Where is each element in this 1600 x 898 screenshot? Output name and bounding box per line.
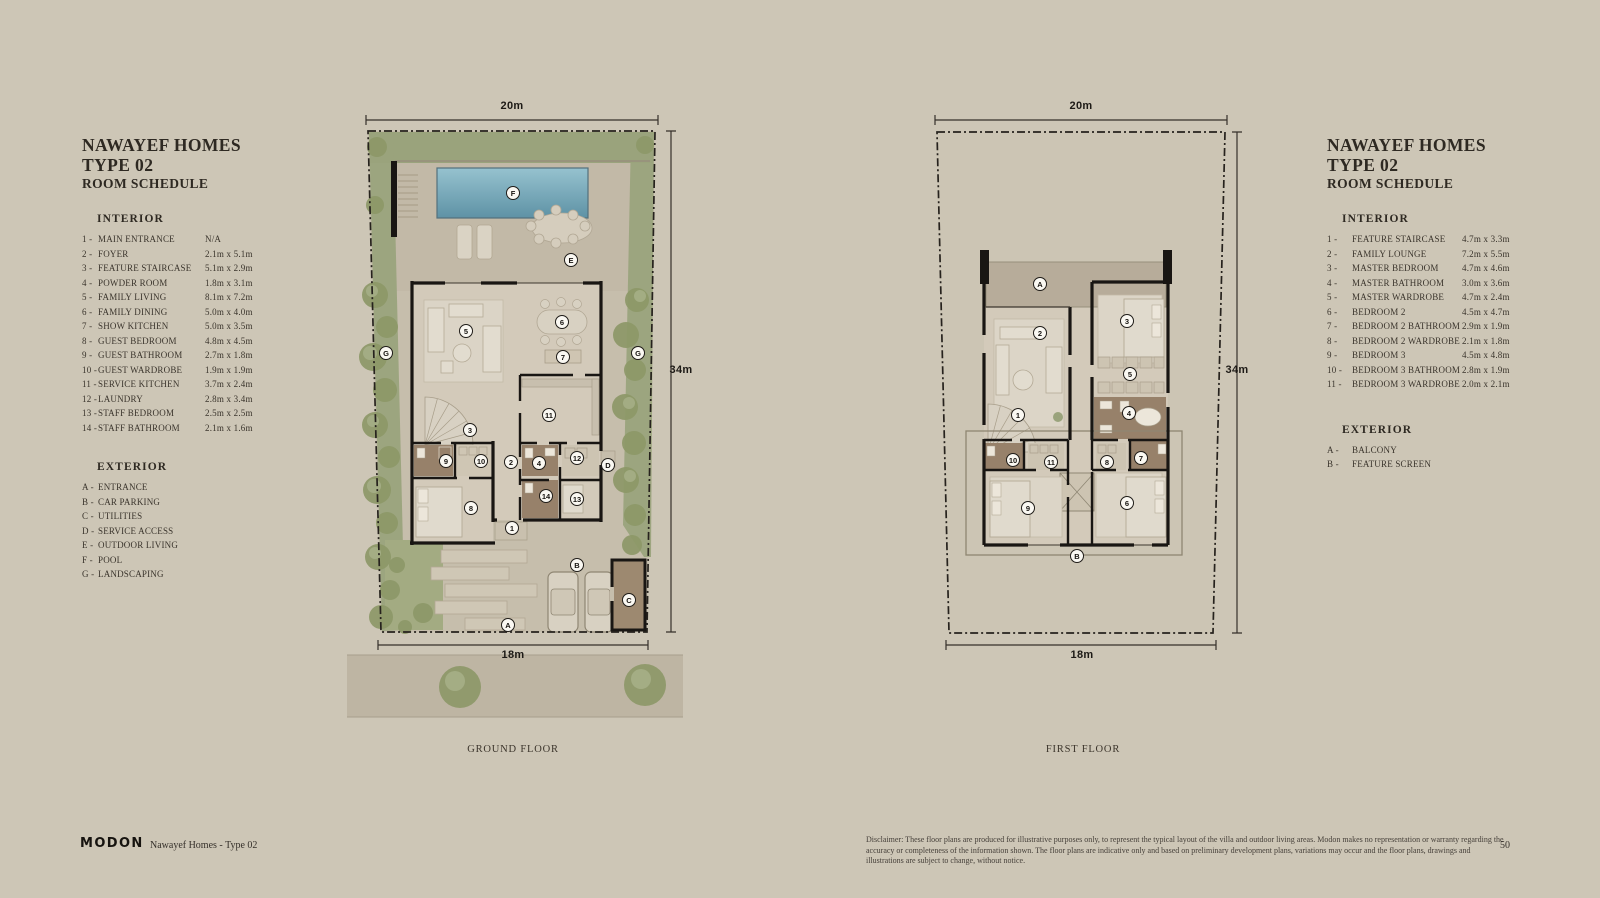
room-row: 8 GUEST BEDROOM 4.8m x 4.5m: [82, 334, 312, 349]
title-line2: TYPE 02: [82, 155, 153, 175]
room-name: SHOW KITCHEN: [98, 319, 205, 334]
room-dimensions: 2.8m x 1.9m: [1462, 363, 1557, 378]
interior-list: 1 MAIN ENTRANCE N/A 2 FOYER 2.1m x 5.1m …: [82, 232, 312, 435]
room-letter: D: [82, 524, 98, 539]
room-number: 12: [82, 392, 98, 407]
room-name: FEATURE STAIRCASE: [98, 261, 205, 276]
room-dimensions: 2.1m x 5.1m: [205, 247, 312, 262]
room-name: SERVICE KITCHEN: [98, 377, 205, 392]
room-name: MASTER BATHROOM: [1352, 276, 1462, 291]
room-row: G LANDSCAPING: [82, 567, 312, 582]
room-dimensions: 7.2m x 5.5m: [1462, 247, 1557, 262]
room-dimensions: 5.0m x 4.0m: [205, 305, 312, 320]
room-number: 8: [82, 334, 98, 349]
room-row: 3 MASTER BEDROOM 4.7m x 4.6m: [1327, 261, 1557, 276]
room-name: FOYER: [98, 247, 205, 262]
room-dimensions: 4.7m x 4.6m: [1462, 261, 1557, 276]
room-row: B FEATURE SCREEN: [1327, 457, 1557, 472]
room-number: 14: [82, 421, 98, 436]
room-row: 2 FAMILY LOUNGE 7.2m x 5.5m: [1327, 247, 1557, 262]
room-number: 3: [1327, 261, 1352, 276]
room-row: 13 STAFF BEDROOM 2.5m x 2.5m: [82, 406, 312, 421]
room-name: MAIN ENTRANCE: [98, 232, 205, 247]
room-name: BEDROOM 2: [1352, 305, 1462, 320]
room-row: 3 FEATURE STAIRCASE 5.1m x 2.9m: [82, 261, 312, 276]
room-number: 1: [1327, 232, 1352, 247]
room-name: GUEST WARDROBE: [98, 363, 205, 378]
room-row: A ENTRANCE: [82, 480, 312, 495]
room-dimensions: 4.5m x 4.8m: [1462, 348, 1557, 363]
room-name: CAR PARKING: [98, 495, 205, 510]
room-name: POOL: [98, 553, 205, 568]
room-dimensions: 2.1m x 1.8m: [1462, 334, 1557, 349]
room-row: 7 SHOW KITCHEN 5.0m x 3.5m: [82, 319, 312, 334]
room-dimensions: 2.5m x 2.5m: [205, 406, 312, 421]
room-name: BEDROOM 2 BATHROOM: [1352, 319, 1462, 334]
room-name: BEDROOM 3: [1352, 348, 1462, 363]
left-room-schedule: NAWAYEF HOMESTYPE 02 ROOM SCHEDULE INTER…: [82, 136, 312, 582]
room-row: 7 BEDROOM 2 BATHROOM 2.9m x 1.9m: [1327, 319, 1557, 334]
room-number: 9: [82, 348, 98, 363]
footer-project-name: Nawayef Homes - Type 02: [150, 840, 257, 851]
room-number: 11: [82, 377, 98, 392]
room-dimensions: 8.1m x 7.2m: [205, 290, 312, 305]
room-dimensions: 5.1m x 2.9m: [205, 261, 312, 276]
room-row: 10 BEDROOM 3 BATHROOM 2.8m x 1.9m: [1327, 363, 1557, 378]
page-title: NAWAYEF HOMESTYPE 02: [82, 136, 312, 175]
brochure-page: { "page": {"background": "#cdc6b6", "num…: [0, 0, 1600, 898]
room-letter: B: [82, 495, 98, 510]
title-line1: NAWAYEF HOMES: [1327, 135, 1486, 155]
room-name: LAUNDRY: [98, 392, 205, 407]
room-name: FAMILY DINING: [98, 305, 205, 320]
room-dimensions: 2.1m x 1.6m: [205, 421, 312, 436]
room-dimensions: 4.7m x 3.3m: [1462, 232, 1557, 247]
room-name: STAFF BEDROOM: [98, 406, 205, 421]
room-dimensions: 4.7m x 2.4m: [1462, 290, 1557, 305]
room-dimensions: 5.0m x 3.5m: [205, 319, 312, 334]
room-dimensions: 4.5m x 4.7m: [1462, 305, 1557, 320]
disclaimer-text: Disclaimer: These floor plans are produc…: [866, 835, 1506, 867]
room-row: 9 GUEST BATHROOM 2.7m x 1.8m: [82, 348, 312, 363]
room-number: 1: [82, 232, 98, 247]
room-name: SERVICE ACCESS: [98, 524, 205, 539]
room-dimensions: 2.0m x 2.1m: [1462, 377, 1557, 392]
room-name: FAMILY LIVING: [98, 290, 205, 305]
room-name: GUEST BEDROOM: [98, 334, 205, 349]
room-row: 10 GUEST WARDROBE 1.9m x 1.9m: [82, 363, 312, 378]
room-dimensions: 1.8m x 3.1m: [205, 276, 312, 291]
room-row: 12 LAUNDRY 2.8m x 3.4m: [82, 392, 312, 407]
room-row: C UTILITIES: [82, 509, 312, 524]
page-number: 50: [1500, 840, 1510, 851]
room-dimensions: 3.7m x 2.4m: [205, 377, 312, 392]
room-name: FAMILY LOUNGE: [1352, 247, 1462, 262]
room-number: 7: [82, 319, 98, 334]
room-row: 11 BEDROOM 3 WARDROBE 2.0m x 2.1m: [1327, 377, 1557, 392]
room-number: 5: [1327, 290, 1352, 305]
room-name: UTILITIES: [98, 509, 205, 524]
room-letter: E: [82, 538, 98, 553]
room-row: F POOL: [82, 553, 312, 568]
room-row: 6 BEDROOM 2 4.5m x 4.7m: [1327, 305, 1557, 320]
exterior-heading: EXTERIOR: [1342, 424, 1557, 436]
room-name: MASTER BEDROOM: [1352, 261, 1462, 276]
room-number: 6: [82, 305, 98, 320]
room-letter: A: [1327, 443, 1352, 458]
room-row: 5 FAMILY LIVING 8.1m x 7.2m: [82, 290, 312, 305]
room-row: 5 MASTER WARDROBE 4.7m x 2.4m: [1327, 290, 1557, 305]
room-letter: C: [82, 509, 98, 524]
room-number: 2: [1327, 247, 1352, 262]
room-row: D SERVICE ACCESS: [82, 524, 312, 539]
subtitle: ROOM SCHEDULE: [82, 176, 312, 192]
room-row: 9 BEDROOM 3 4.5m x 4.8m: [1327, 348, 1557, 363]
interior-heading: INTERIOR: [97, 213, 312, 225]
room-row: 14 STAFF BATHROOM 2.1m x 1.6m: [82, 421, 312, 436]
room-row: 1 FEATURE STAIRCASE 4.7m x 3.3m: [1327, 232, 1557, 247]
room-row: 1 MAIN ENTRANCE N/A: [82, 232, 312, 247]
page-title: NAWAYEF HOMESTYPE 02: [1327, 136, 1557, 175]
first-floor-plan-drawing: [920, 95, 1255, 775]
room-dimensions: 2.8m x 3.4m: [205, 392, 312, 407]
exterior-list: A ENTRANCE B CAR PARKING C UTILITIES D S…: [82, 480, 312, 582]
room-name: BEDROOM 3 BATHROOM: [1352, 363, 1462, 378]
room-dimensions: 2.9m x 1.9m: [1462, 319, 1557, 334]
room-dimensions: 1.9m x 1.9m: [205, 363, 312, 378]
interior-heading: INTERIOR: [1342, 213, 1557, 225]
room-number: 10: [1327, 363, 1352, 378]
room-row: 2 FOYER 2.1m x 5.1m: [82, 247, 312, 262]
room-number: 4: [1327, 276, 1352, 291]
right-room-schedule: NAWAYEF HOMESTYPE 02 ROOM SCHEDULE INTER…: [1327, 136, 1557, 472]
title-line2: TYPE 02: [1327, 155, 1398, 175]
subtitle: ROOM SCHEDULE: [1327, 176, 1557, 192]
room-row: A BALCONY: [1327, 443, 1557, 458]
exterior-heading: EXTERIOR: [97, 461, 312, 473]
modon-logo: MODON: [80, 836, 144, 851]
room-row: 4 MASTER BATHROOM 3.0m x 3.6m: [1327, 276, 1557, 291]
room-name: ENTRANCE: [98, 480, 205, 495]
room-number: 2: [82, 247, 98, 262]
room-name: STAFF BATHROOM: [98, 421, 205, 436]
room-name: MASTER WARDROBE: [1352, 290, 1462, 305]
room-number: 11: [1327, 377, 1352, 392]
room-name: OUTDOOR LIVING: [98, 538, 205, 553]
room-number: 8: [1327, 334, 1352, 349]
room-row: E OUTDOOR LIVING: [82, 538, 312, 553]
room-row: B CAR PARKING: [82, 495, 312, 510]
interior-list: 1 FEATURE STAIRCASE 4.7m x 3.3m 2 FAMILY…: [1327, 232, 1557, 392]
room-number: 13: [82, 406, 98, 421]
room-name: FEATURE SCREEN: [1352, 457, 1462, 472]
room-letter: F: [82, 553, 98, 568]
room-number: 9: [1327, 348, 1352, 363]
room-number: 3: [82, 261, 98, 276]
title-line1: NAWAYEF HOMES: [82, 135, 241, 155]
room-letter: A: [82, 480, 98, 495]
room-name: POWDER ROOM: [98, 276, 205, 291]
room-row: 11 SERVICE KITCHEN 3.7m x 2.4m: [82, 377, 312, 392]
room-dimensions: N/A: [205, 232, 312, 247]
room-name: BALCONY: [1352, 443, 1462, 458]
room-dimensions: 2.7m x 1.8m: [205, 348, 312, 363]
room-dimensions: 4.8m x 4.5m: [205, 334, 312, 349]
room-dimensions: 3.0m x 3.6m: [1462, 276, 1557, 291]
room-name: BEDROOM 2 WARDROBE: [1352, 334, 1462, 349]
room-name: LANDSCAPING: [98, 567, 205, 582]
room-number: 5: [82, 290, 98, 305]
room-name: FEATURE STAIRCASE: [1352, 232, 1462, 247]
room-row: 8 BEDROOM 2 WARDROBE 2.1m x 1.8m: [1327, 334, 1557, 349]
room-name: BEDROOM 3 WARDROBE: [1352, 377, 1462, 392]
exterior-list: A BALCONY B FEATURE SCREEN: [1327, 443, 1557, 472]
room-number: 7: [1327, 319, 1352, 334]
ground-floor-plan-drawing: [345, 95, 685, 775]
room-name: GUEST BATHROOM: [98, 348, 205, 363]
room-letter: G: [82, 567, 98, 582]
room-number: 10: [82, 363, 98, 378]
room-letter: B: [1327, 457, 1352, 472]
room-row: 6 FAMILY DINING 5.0m x 4.0m: [82, 305, 312, 320]
room-row: 4 POWDER ROOM 1.8m x 3.1m: [82, 276, 312, 291]
room-number: 4: [82, 276, 98, 291]
room-number: 6: [1327, 305, 1352, 320]
